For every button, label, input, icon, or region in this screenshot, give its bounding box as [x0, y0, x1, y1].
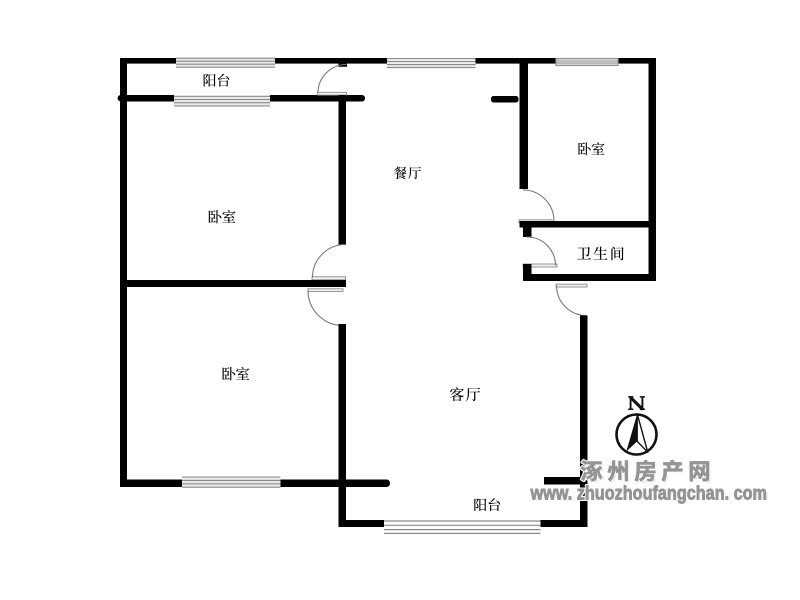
svg-text:www. zhuozhoufangchan. com: www. zhuozhoufangchan. com [530, 482, 767, 504]
